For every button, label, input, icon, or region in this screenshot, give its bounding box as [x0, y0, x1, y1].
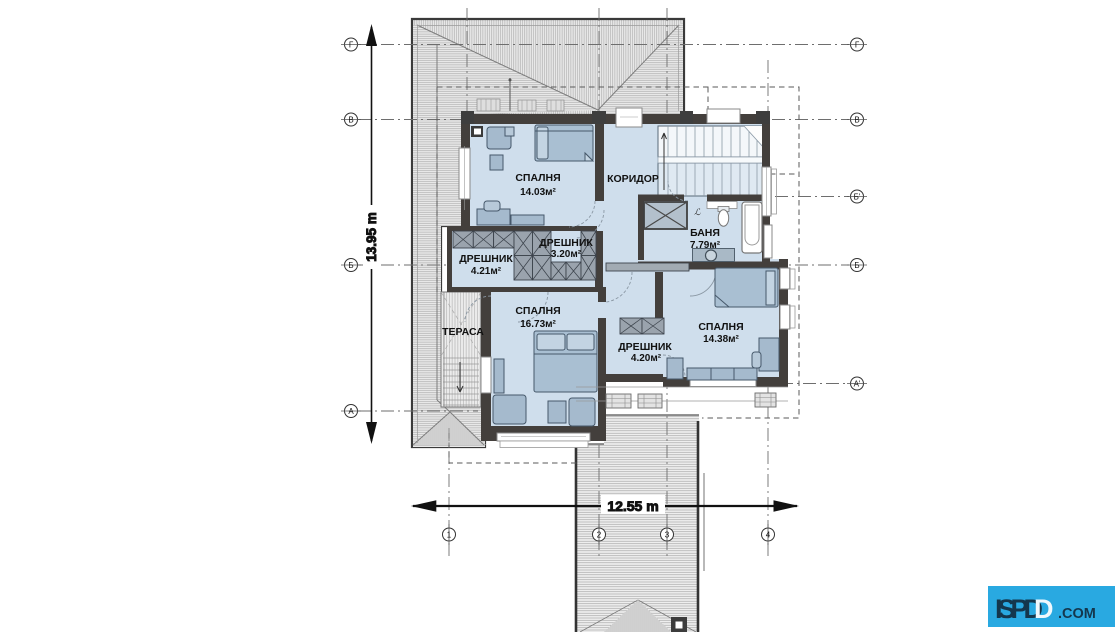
svg-text:В: В: [854, 116, 859, 125]
svg-text:КОРИДОР: КОРИДОР: [607, 173, 659, 185]
svg-text:СПАЛНЯ: СПАЛНЯ: [515, 172, 560, 184]
svg-text:Г: Г: [349, 41, 354, 50]
svg-text:ДРЕШНИК: ДРЕШНИК: [618, 341, 672, 353]
svg-text:Б: Б: [348, 261, 353, 270]
svg-text:ТЕРАСА: ТЕРАСА: [442, 326, 484, 338]
svg-text:3: 3: [665, 531, 670, 540]
svg-text:12.55 m: 12.55 m: [607, 498, 658, 514]
svg-text:А': А': [854, 380, 861, 389]
svg-text:4.21м²: 4.21м²: [471, 266, 502, 277]
svg-text:14.03м²: 14.03м²: [520, 187, 556, 198]
svg-text:СПАЛНЯ: СПАЛНЯ: [515, 305, 560, 317]
svg-text:2: 2: [597, 531, 602, 540]
svg-text:ДРЕШНИК: ДРЕШНИК: [459, 253, 513, 265]
svg-text:13.95 m: 13.95 m: [364, 212, 379, 262]
svg-text:А: А: [348, 407, 354, 416]
svg-text:D: D: [1034, 594, 1054, 624]
svg-text:4.20м²: 4.20м²: [631, 353, 662, 364]
svg-text:СПАЛНЯ: СПАЛНЯ: [698, 321, 743, 333]
svg-text:ДРЕШНИК: ДРЕШНИК: [539, 237, 593, 249]
svg-text:Г: Г: [855, 41, 860, 50]
svg-text:Б': Б': [854, 193, 861, 202]
svg-text:ℒ: ℒ: [694, 207, 701, 217]
svg-text:16.73м²: 16.73м²: [520, 319, 556, 330]
svg-text:БАНЯ: БАНЯ: [690, 227, 720, 239]
svg-text:7.79м²: 7.79м²: [690, 240, 721, 251]
svg-text:Б: Б: [854, 261, 859, 270]
svg-text:1: 1: [447, 531, 452, 540]
svg-text:В: В: [348, 116, 353, 125]
svg-text:14.38м²: 14.38м²: [703, 334, 739, 345]
svg-text:.COM: .COM: [1058, 606, 1096, 622]
svg-text:3.20м²: 3.20м²: [551, 249, 582, 260]
svg-text:4: 4: [766, 531, 771, 540]
